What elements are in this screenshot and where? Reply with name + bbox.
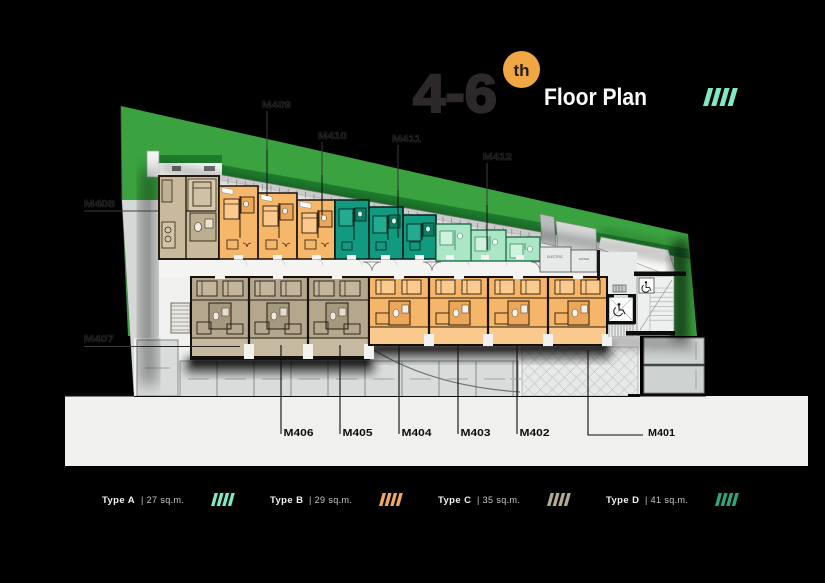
svg-text:WATER: WATER bbox=[579, 257, 590, 261]
svg-text:| 27 sq.m.: | 27 sq.m. bbox=[141, 495, 184, 505]
svg-text:M408: M408 bbox=[84, 198, 115, 210]
svg-text:4-6: 4-6 bbox=[413, 64, 497, 124]
svg-text:| 41 sq.m.: | 41 sq.m. bbox=[645, 495, 688, 505]
svg-text:Floor Plan: Floor Plan bbox=[544, 84, 647, 111]
svg-text:M401: M401 bbox=[648, 428, 675, 439]
svg-text:M402: M402 bbox=[520, 428, 551, 439]
svg-text:| 29 sq.m.: | 29 sq.m. bbox=[309, 495, 352, 505]
svg-text:M407: M407 bbox=[84, 333, 114, 345]
svg-text:M410: M410 bbox=[318, 130, 347, 142]
svg-text:| 35 sq.m.: | 35 sq.m. bbox=[477, 495, 520, 505]
svg-text:Type D: Type D bbox=[606, 495, 639, 506]
svg-text:M409: M409 bbox=[262, 99, 291, 111]
svg-text:M411: M411 bbox=[392, 133, 421, 145]
svg-text:Type B: Type B bbox=[270, 495, 303, 506]
svg-text:M403: M403 bbox=[461, 428, 492, 439]
svg-text:M412: M412 bbox=[483, 151, 512, 163]
svg-text:M406: M406 bbox=[284, 428, 315, 439]
svg-text:th: th bbox=[513, 61, 529, 80]
svg-text:M405: M405 bbox=[343, 428, 374, 439]
svg-text:ELECTRIC: ELECTRIC bbox=[547, 255, 563, 259]
svg-text:Type A: Type A bbox=[102, 495, 135, 506]
svg-text:M404: M404 bbox=[402, 428, 433, 439]
svg-text:Type C: Type C bbox=[438, 495, 471, 506]
